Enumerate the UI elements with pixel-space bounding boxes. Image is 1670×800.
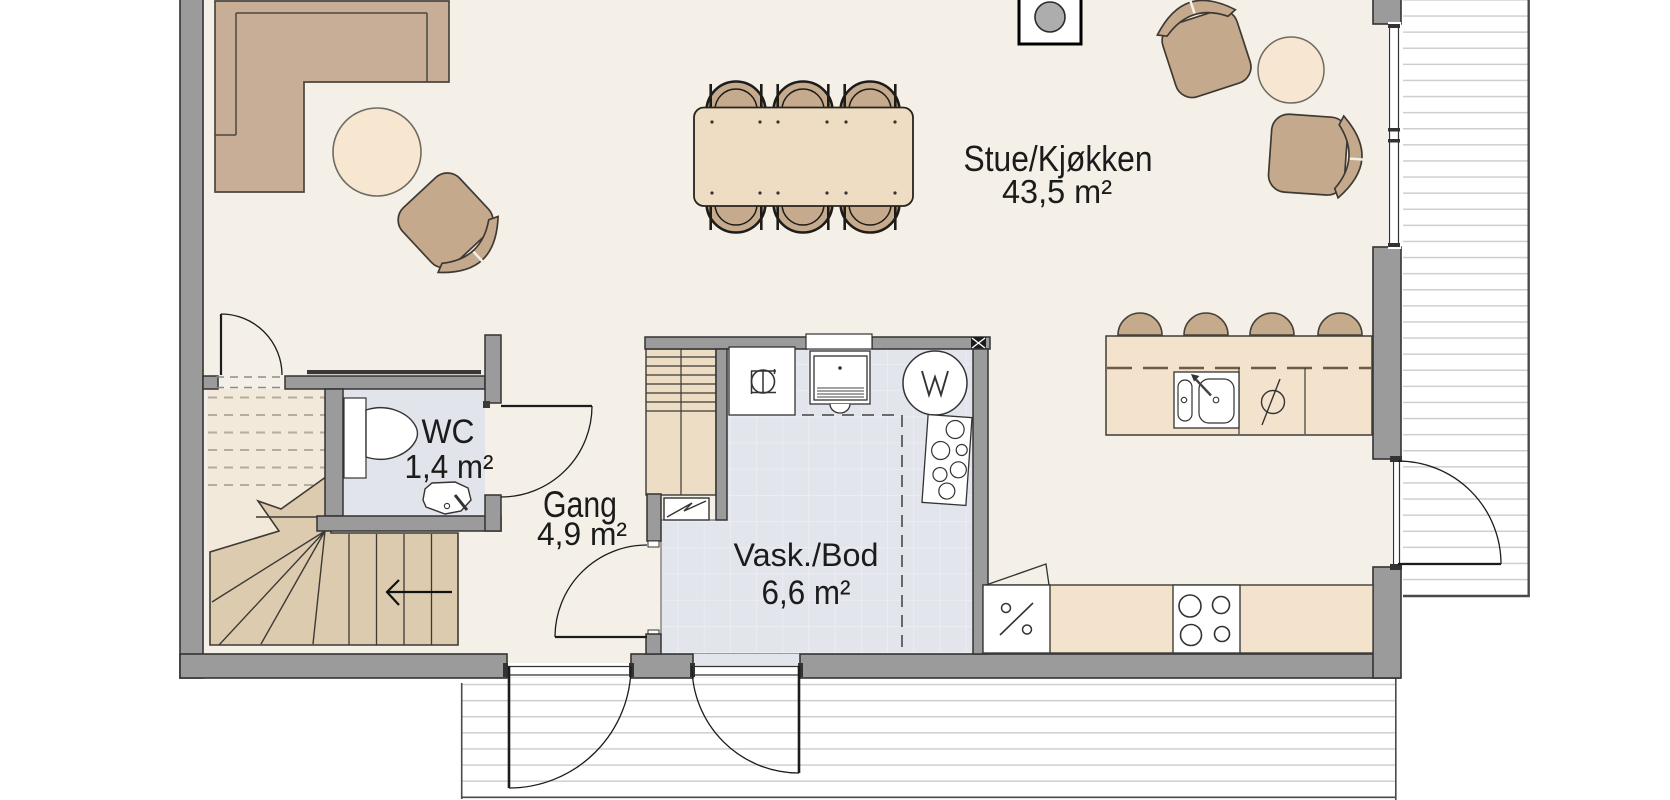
- svg-text:43,5 m²: 43,5 m²: [1002, 173, 1112, 210]
- svg-text:Vask./Bod: Vask./Bod: [734, 537, 879, 573]
- svg-text:4,9 m²: 4,9 m²: [537, 516, 627, 552]
- svg-text:6,6 m²: 6,6 m²: [762, 574, 851, 612]
- svg-text:WC: WC: [422, 413, 475, 451]
- svg-text:1,4 m²: 1,4 m²: [405, 448, 494, 485]
